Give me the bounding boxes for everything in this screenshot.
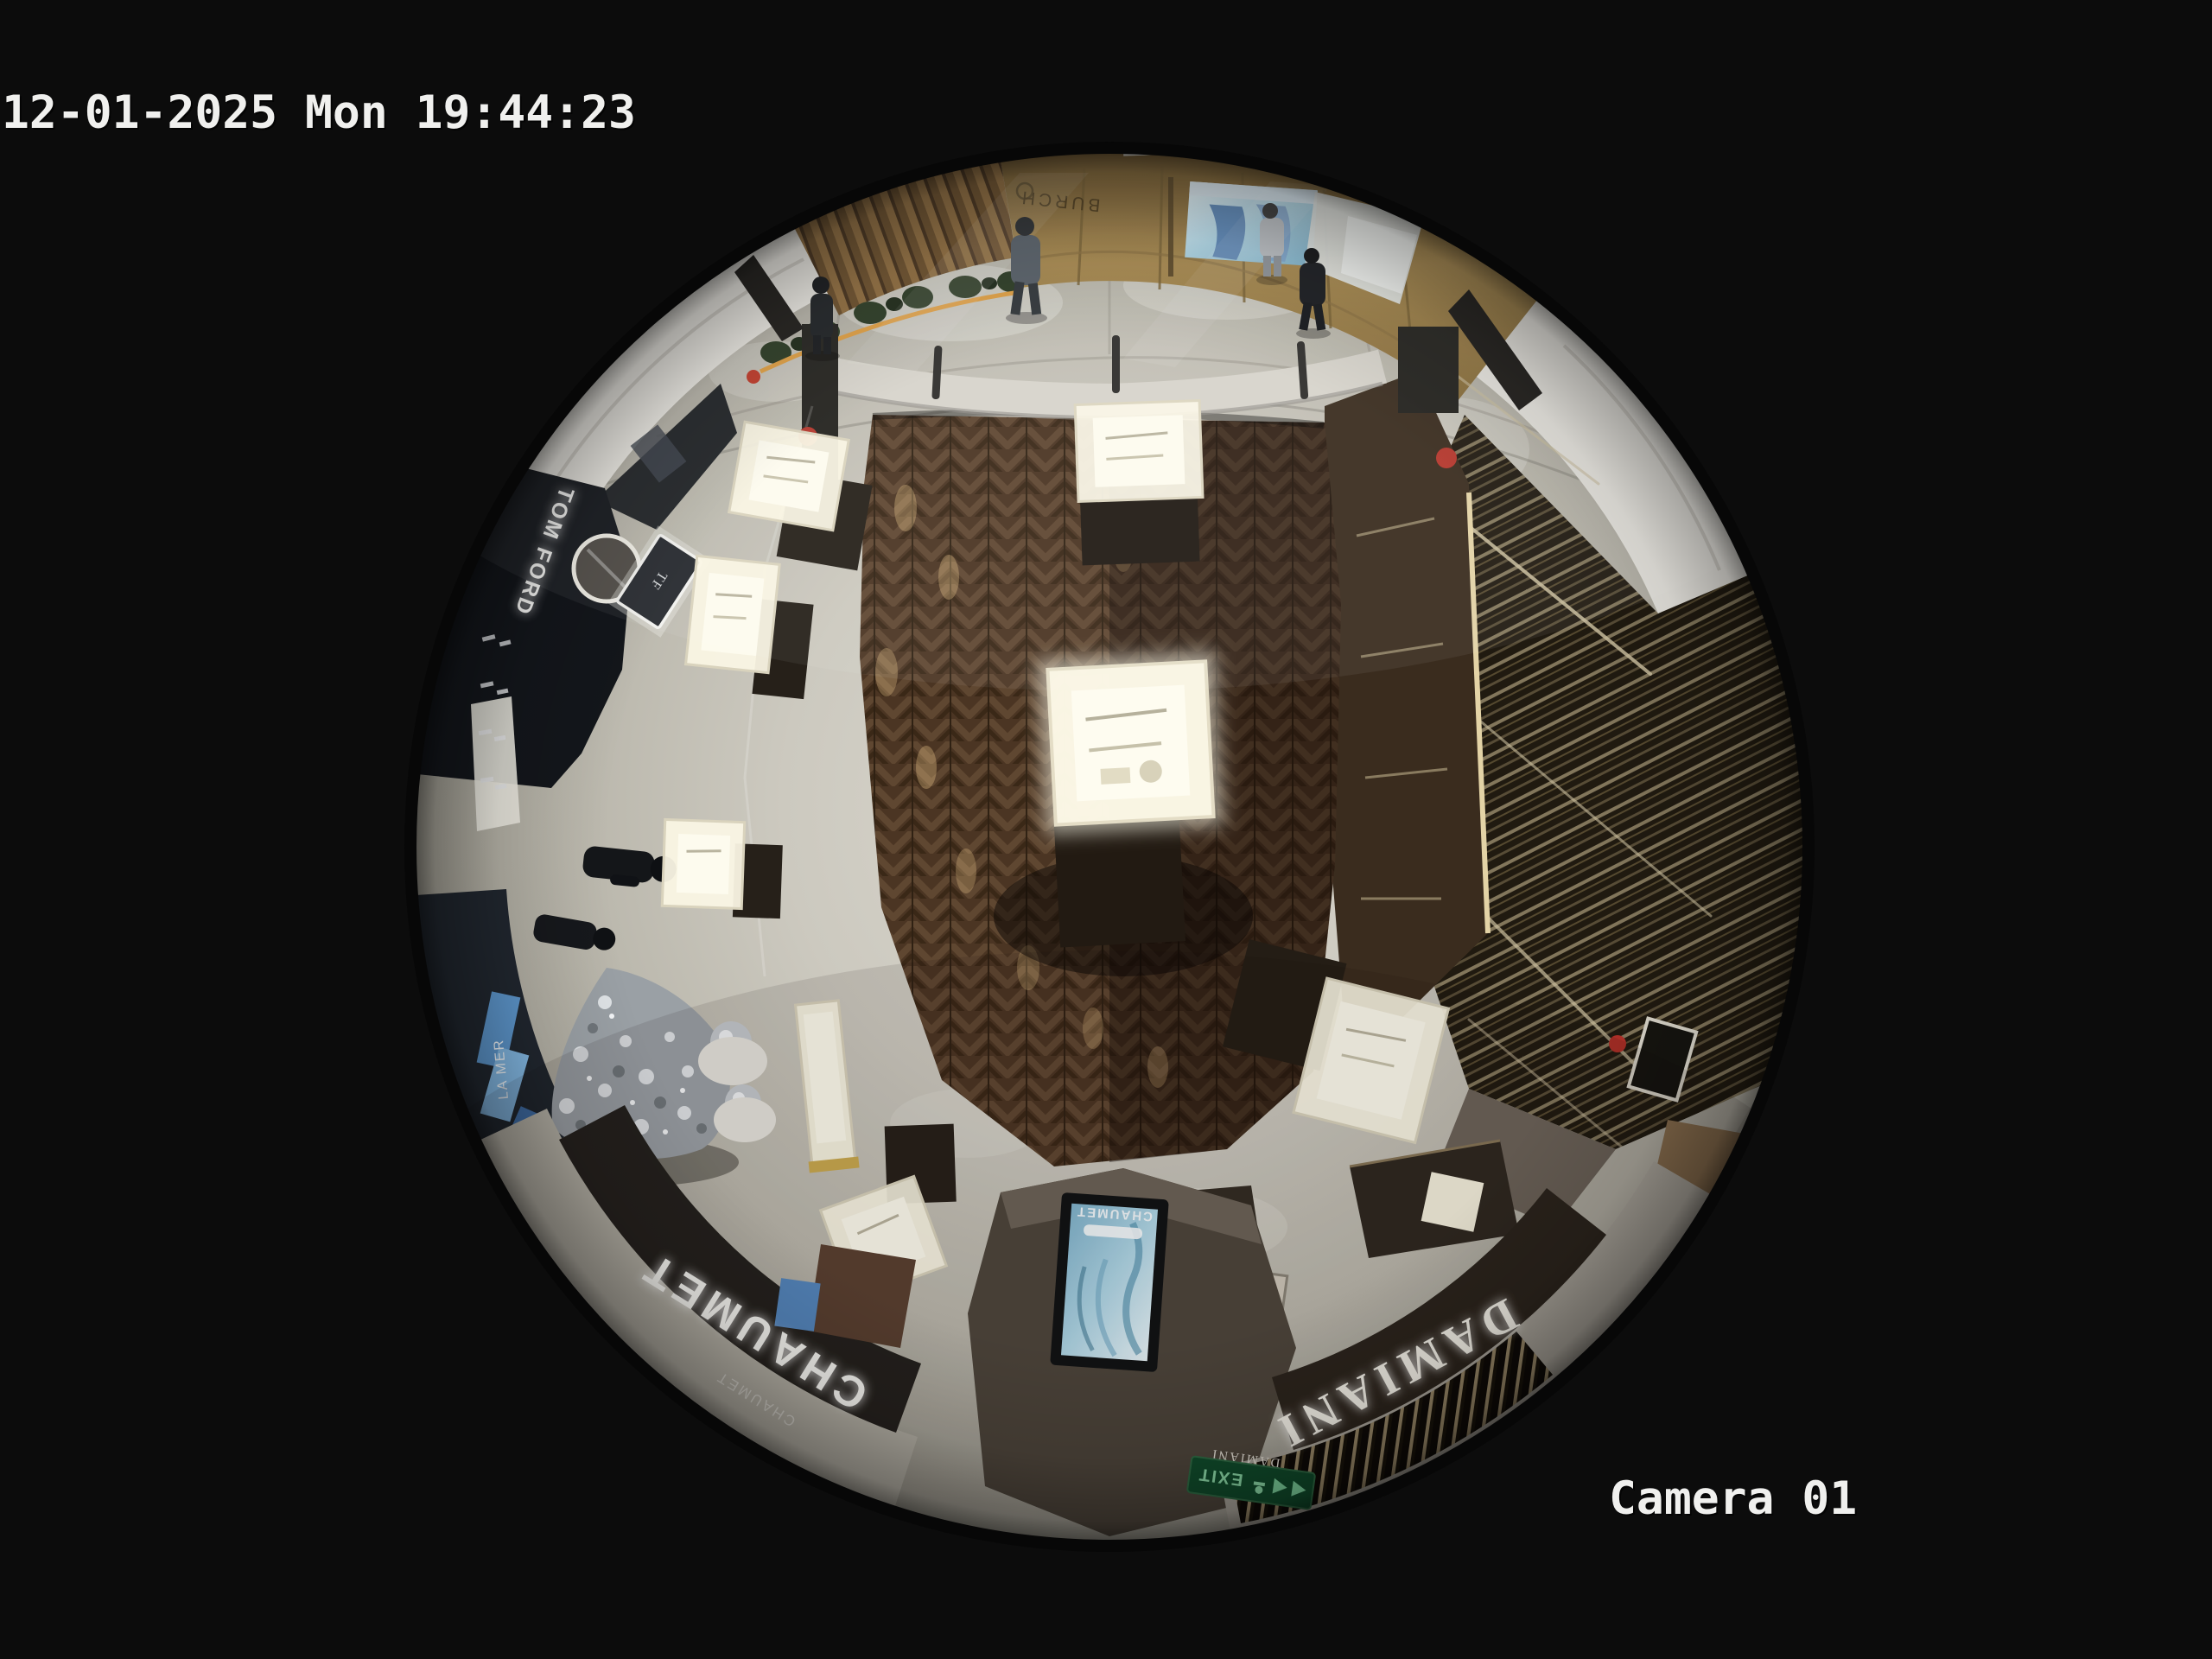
fisheye-feed: BURCH (0, 0, 2212, 1659)
cctv-frame: BURCH (0, 0, 2212, 1659)
vignette (414, 151, 1805, 1542)
camera-label-overlay: Camera 01 (1609, 1472, 1857, 1525)
timestamp-overlay: 12-01-2025 Mon 19:44:23 (2, 86, 636, 139)
